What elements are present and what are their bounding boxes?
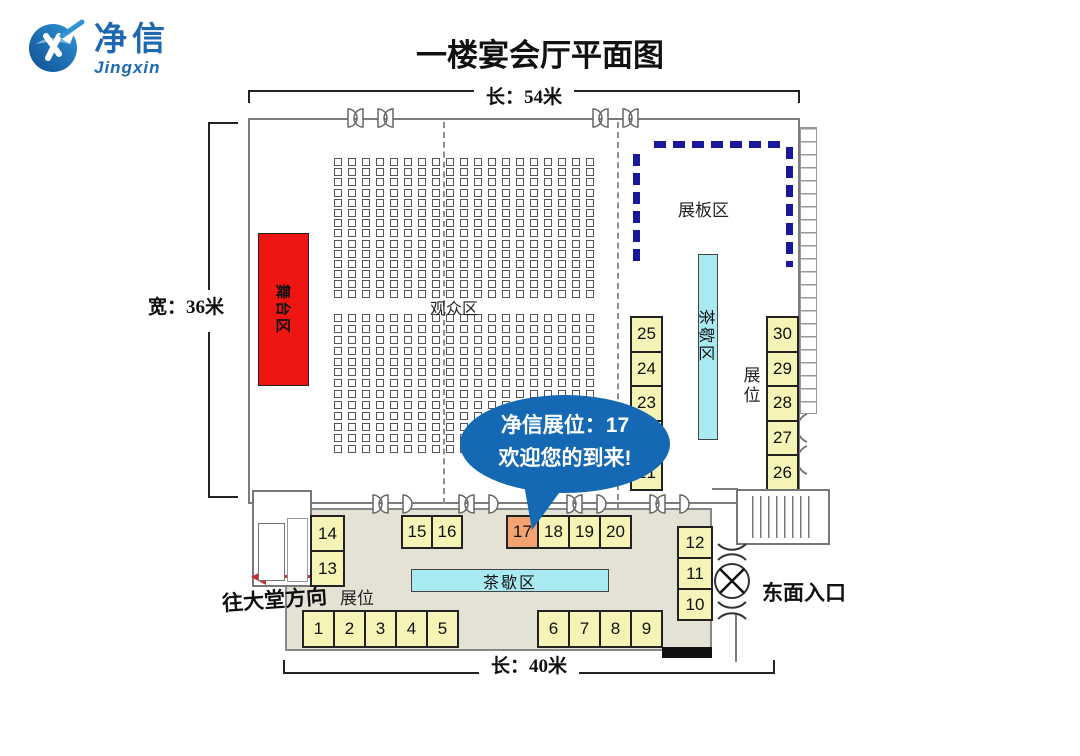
- seat: [348, 314, 356, 322]
- seat: [544, 240, 552, 248]
- seat: [530, 290, 538, 298]
- seat: [544, 270, 552, 278]
- seat: [558, 240, 566, 248]
- seat: [376, 368, 384, 376]
- booth-9: 9: [630, 610, 663, 648]
- seat: [544, 189, 552, 197]
- seat: [474, 240, 482, 248]
- seat: [474, 358, 482, 366]
- seat: [334, 379, 342, 387]
- seat: [558, 209, 566, 217]
- seat: [334, 434, 342, 442]
- east-entrance-label: 东面入口: [762, 577, 846, 607]
- seat: [362, 423, 370, 431]
- seat: [474, 250, 482, 258]
- seat: [530, 347, 538, 355]
- seat: [362, 219, 370, 227]
- seat: [376, 229, 384, 237]
- seat: [348, 336, 356, 344]
- seat: [432, 336, 440, 344]
- seat: [502, 219, 510, 227]
- seat: [404, 423, 412, 431]
- seat: [572, 199, 580, 207]
- seat: [334, 229, 342, 237]
- seat: [432, 280, 440, 288]
- seat: [572, 336, 580, 344]
- seat: [572, 368, 580, 376]
- seat: [334, 401, 342, 409]
- booth-7: 7: [568, 610, 601, 648]
- seat: [404, 240, 412, 248]
- booth-24: 24: [630, 351, 663, 388]
- seat: [502, 168, 510, 176]
- seat: [558, 325, 566, 333]
- seat: [404, 290, 412, 298]
- seat: [474, 260, 482, 268]
- seat: [474, 280, 482, 288]
- seat: [404, 379, 412, 387]
- booth-6: 6: [537, 610, 570, 648]
- seat: [460, 209, 468, 217]
- seat: [502, 178, 510, 186]
- seat: [488, 158, 496, 166]
- seat: [572, 168, 580, 176]
- tea-area-vertical-label: 茶歇区: [688, 296, 728, 376]
- seat: [376, 347, 384, 355]
- seat: [530, 314, 538, 322]
- floorplan-page: 净信 Jingxin 一楼宴会厅平面图 长：54米 宽：36米 长：40米 舞台…: [0, 0, 1080, 756]
- seat: [586, 199, 594, 207]
- seat: [572, 158, 580, 166]
- seat: [488, 270, 496, 278]
- tea-area-horizontal-label: 茶歇区: [483, 569, 537, 593]
- seat: [572, 189, 580, 197]
- seat: [376, 280, 384, 288]
- seat: [460, 358, 468, 366]
- seat: [530, 178, 538, 186]
- seat: [544, 158, 552, 166]
- seat: [432, 158, 440, 166]
- seat: [334, 280, 342, 288]
- seat: [530, 270, 538, 278]
- seat: [432, 178, 440, 186]
- seat: [530, 358, 538, 366]
- seat: [530, 209, 538, 217]
- seat: [488, 250, 496, 258]
- seat: [446, 189, 454, 197]
- seat: [530, 325, 538, 333]
- seat: [376, 168, 384, 176]
- seat: [334, 325, 342, 333]
- jingxin-logo: 净信 Jingxin: [26, 14, 170, 76]
- seat: [432, 240, 440, 248]
- seat: [334, 290, 342, 298]
- foyer-black-bar: [662, 647, 712, 658]
- seat: [474, 379, 482, 387]
- seat: [586, 368, 594, 376]
- seat: [558, 250, 566, 258]
- seat: [362, 379, 370, 387]
- seat: [572, 379, 580, 387]
- seat: [418, 445, 426, 453]
- seat: [474, 168, 482, 176]
- seat: [362, 199, 370, 207]
- seat: [474, 219, 482, 227]
- seat: [362, 270, 370, 278]
- seat: [404, 336, 412, 344]
- seat: [404, 347, 412, 355]
- seat: [348, 199, 356, 207]
- seat: [516, 199, 524, 207]
- seat: [516, 260, 524, 268]
- seat: [376, 290, 384, 298]
- seat: [334, 219, 342, 227]
- seat: [544, 368, 552, 376]
- seat: [460, 325, 468, 333]
- seat: [572, 314, 580, 322]
- seat: [544, 379, 552, 387]
- seat: [460, 178, 468, 186]
- seat: [460, 250, 468, 258]
- seat: [362, 434, 370, 442]
- seat: [530, 250, 538, 258]
- seat: [418, 270, 426, 278]
- seat: [474, 189, 482, 197]
- seat: [446, 379, 454, 387]
- seat: [334, 260, 342, 268]
- seat: [474, 209, 482, 217]
- seat: [418, 314, 426, 322]
- seat: [530, 158, 538, 166]
- seat: [334, 347, 342, 355]
- double-door-icon: [586, 107, 650, 134]
- logo-en-text: Jingxin: [94, 59, 170, 76]
- booth-4: 4: [395, 610, 428, 648]
- seat: [572, 209, 580, 217]
- seat: [376, 219, 384, 227]
- seat: [432, 412, 440, 420]
- seat: [572, 290, 580, 298]
- seat: [502, 270, 510, 278]
- seat: [446, 219, 454, 227]
- seat: [502, 347, 510, 355]
- seat: [516, 347, 524, 355]
- seat: [586, 260, 594, 268]
- seat: [362, 250, 370, 258]
- seat: [460, 199, 468, 207]
- seat: [348, 229, 356, 237]
- seat: [376, 358, 384, 366]
- seat: [516, 314, 524, 322]
- seat: [488, 168, 496, 176]
- seat: [530, 189, 538, 197]
- seat: [558, 280, 566, 288]
- seat: [432, 401, 440, 409]
- seat: [376, 260, 384, 268]
- seat: [376, 189, 384, 197]
- seat: [572, 358, 580, 366]
- seat: [418, 189, 426, 197]
- seat: [530, 199, 538, 207]
- seat: [558, 379, 566, 387]
- seat: [404, 401, 412, 409]
- audience-label: 观众区: [430, 295, 478, 319]
- seat: [446, 199, 454, 207]
- seat: [460, 379, 468, 387]
- seat: [404, 445, 412, 453]
- seat: [404, 314, 412, 322]
- booth-28: 28: [766, 385, 799, 422]
- seat: [390, 368, 398, 376]
- seat: [586, 229, 594, 237]
- seat: [348, 358, 356, 366]
- double-door-icon: [341, 107, 405, 134]
- seat: [572, 178, 580, 186]
- seat: [362, 260, 370, 268]
- seat: [418, 412, 426, 420]
- booth-29: 29: [766, 351, 799, 388]
- seat: [390, 229, 398, 237]
- seat: [432, 250, 440, 258]
- seat: [544, 178, 552, 186]
- seat: [544, 209, 552, 217]
- seat: [348, 401, 356, 409]
- seat: [446, 178, 454, 186]
- seat: [516, 325, 524, 333]
- seat: [586, 270, 594, 278]
- seat: [432, 209, 440, 217]
- seat: [488, 358, 496, 366]
- seat: [404, 199, 412, 207]
- seat: [432, 347, 440, 355]
- seat: [334, 368, 342, 376]
- seat: [572, 240, 580, 248]
- seat: [376, 412, 384, 420]
- seat: [586, 314, 594, 322]
- seat: [502, 358, 510, 366]
- board-area-dash-top: [654, 141, 786, 148]
- seat: [390, 219, 398, 227]
- seat: [404, 434, 412, 442]
- seat: [376, 379, 384, 387]
- booth-13: 13: [310, 550, 345, 587]
- seat: [460, 280, 468, 288]
- seat: [348, 219, 356, 227]
- seat: [362, 358, 370, 366]
- seat: [362, 401, 370, 409]
- seat: [502, 325, 510, 333]
- seat: [544, 229, 552, 237]
- seat: [558, 336, 566, 344]
- seat: [362, 178, 370, 186]
- seat: [446, 368, 454, 376]
- seat: [432, 445, 440, 453]
- seat: [432, 189, 440, 197]
- seat: [558, 219, 566, 227]
- seat: [432, 168, 440, 176]
- seat: [502, 314, 510, 322]
- seat: [334, 390, 342, 398]
- seat: [502, 189, 510, 197]
- seat: [390, 280, 398, 288]
- dimension-bottom-label: 长：40米: [479, 651, 579, 678]
- seat: [334, 158, 342, 166]
- seat: [530, 379, 538, 387]
- seat: [390, 189, 398, 197]
- seat: [572, 270, 580, 278]
- seat: [404, 325, 412, 333]
- seat: [376, 423, 384, 431]
- seat: [488, 199, 496, 207]
- seat: [390, 412, 398, 420]
- booth-26: 26: [766, 454, 799, 491]
- seat: [516, 270, 524, 278]
- seat: [418, 290, 426, 298]
- seat: [558, 189, 566, 197]
- seat: [474, 347, 482, 355]
- seat: [516, 219, 524, 227]
- seat: [362, 336, 370, 344]
- seat: [530, 168, 538, 176]
- seat: [348, 260, 356, 268]
- seat: [418, 168, 426, 176]
- seat: [376, 158, 384, 166]
- seat: [460, 240, 468, 248]
- seat: [348, 390, 356, 398]
- seat: [446, 280, 454, 288]
- seat: [544, 290, 552, 298]
- seat: [586, 347, 594, 355]
- seat: [544, 250, 552, 258]
- callout-line-2: 欢迎您的到来!: [452, 442, 678, 475]
- booth-8: 8: [599, 610, 632, 648]
- seat: [432, 390, 440, 398]
- seat: [404, 250, 412, 258]
- seat: [362, 390, 370, 398]
- seat: [488, 290, 496, 298]
- seat: [418, 390, 426, 398]
- booth-1: 1: [302, 610, 335, 648]
- seat: [432, 368, 440, 376]
- seat: [390, 434, 398, 442]
- seat: [516, 368, 524, 376]
- seat: [390, 325, 398, 333]
- seat: [488, 189, 496, 197]
- seat: [362, 209, 370, 217]
- seat: [390, 209, 398, 217]
- seat: [390, 158, 398, 166]
- seat: [362, 314, 370, 322]
- seat: [362, 325, 370, 333]
- seat: [390, 168, 398, 176]
- booth-27: 27: [766, 420, 799, 457]
- seat: [446, 250, 454, 258]
- seat: [418, 347, 426, 355]
- seat: [516, 209, 524, 217]
- seat: [418, 209, 426, 217]
- audience-seats-top: [334, 158, 594, 298]
- booth-3: 3: [364, 610, 397, 648]
- seat: [348, 368, 356, 376]
- seat: [488, 260, 496, 268]
- seat: [418, 260, 426, 268]
- seat: [544, 347, 552, 355]
- seat: [376, 178, 384, 186]
- seat: [418, 336, 426, 344]
- seat: [362, 347, 370, 355]
- seat: [586, 158, 594, 166]
- seat: [572, 260, 580, 268]
- seat: [404, 280, 412, 288]
- seat: [516, 158, 524, 166]
- seat: [362, 189, 370, 197]
- seat: [474, 158, 482, 166]
- seat: [334, 209, 342, 217]
- seat: [530, 240, 538, 248]
- double-door-icon: [366, 493, 415, 520]
- seat: [586, 325, 594, 333]
- seat: [376, 445, 384, 453]
- revolving-door-icon: [708, 543, 756, 621]
- seat: [418, 280, 426, 288]
- seat: [362, 158, 370, 166]
- seat: [558, 199, 566, 207]
- seat: [432, 270, 440, 278]
- seat: [446, 325, 454, 333]
- seat: [586, 250, 594, 258]
- seat: [404, 260, 412, 268]
- booth-30: 30: [766, 316, 799, 353]
- seat: [334, 270, 342, 278]
- seat: [334, 423, 342, 431]
- seat: [348, 209, 356, 217]
- seat: [334, 240, 342, 248]
- seat: [572, 219, 580, 227]
- seat: [530, 260, 538, 268]
- seat: [446, 347, 454, 355]
- seat: [404, 368, 412, 376]
- seat: [362, 240, 370, 248]
- seat: [376, 434, 384, 442]
- wall-segment: [735, 614, 737, 662]
- seat: [544, 168, 552, 176]
- seat: [418, 229, 426, 237]
- seat: [418, 434, 426, 442]
- seat: [390, 260, 398, 268]
- seat: [460, 260, 468, 268]
- seat: [432, 379, 440, 387]
- booth-14: 14: [310, 515, 345, 552]
- page-title: 一楼宴会厅平面图: [350, 30, 730, 75]
- seat: [404, 358, 412, 366]
- seat: [404, 158, 412, 166]
- seat: [390, 250, 398, 258]
- booth-row-1-5: 12345: [302, 610, 459, 648]
- seat: [348, 270, 356, 278]
- seat: [432, 434, 440, 442]
- seat: [558, 158, 566, 166]
- seat: [558, 290, 566, 298]
- seat: [348, 423, 356, 431]
- seat: [502, 280, 510, 288]
- seat: [544, 219, 552, 227]
- booths-right-label: 展位: [742, 366, 762, 406]
- seat: [558, 260, 566, 268]
- seat: [446, 229, 454, 237]
- seat: [488, 325, 496, 333]
- seat: [488, 178, 496, 186]
- seat: [418, 379, 426, 387]
